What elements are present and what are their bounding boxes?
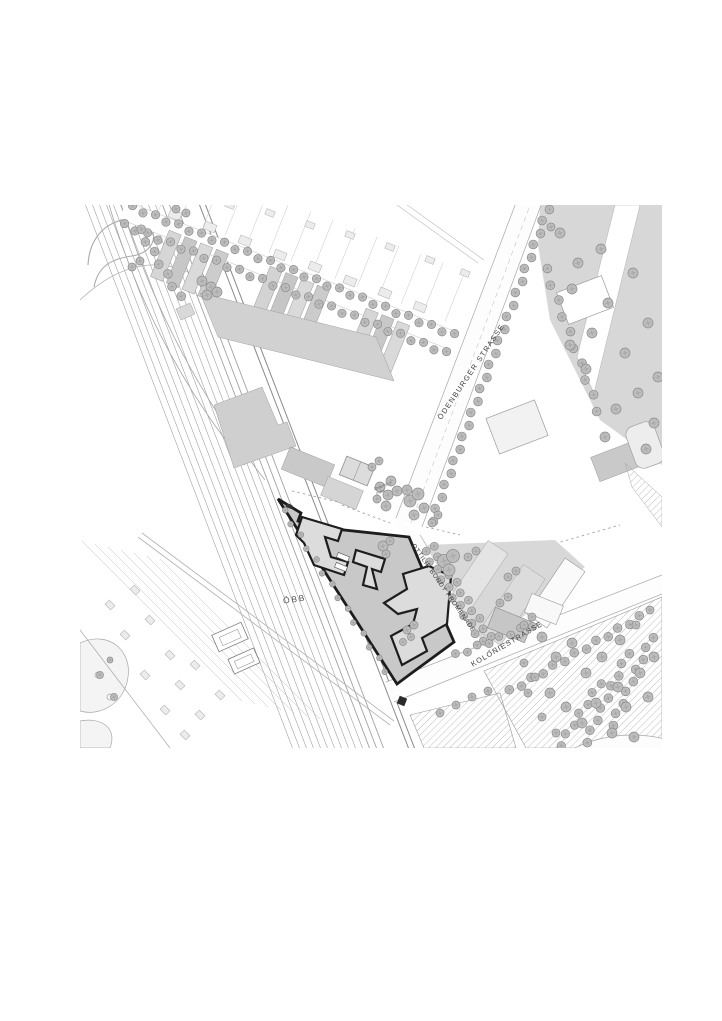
site-plan-map: ÖDENBURGER STRASSE OTTILIE BONDY PROMENA… <box>80 205 662 748</box>
garden-facility-buildings <box>212 622 260 674</box>
park-blobs <box>80 639 128 748</box>
allotment-gardens <box>82 541 320 740</box>
project-site <box>278 499 454 684</box>
railway-label-obb: ÖBB <box>282 592 307 605</box>
site-plan-page: ÖDENBURGER STRASSE OTTILIE BONDY PROMENA… <box>0 0 722 1021</box>
site-plan-drawing: ÖDENBURGER STRASSE OTTILIE BONDY PROMENA… <box>80 205 662 748</box>
